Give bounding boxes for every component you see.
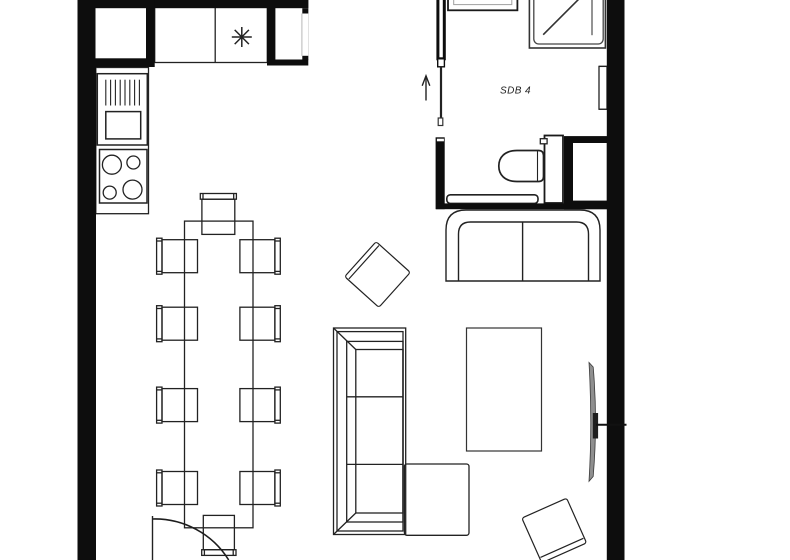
svg-text:SDB 4: SDB 4 (500, 86, 531, 97)
